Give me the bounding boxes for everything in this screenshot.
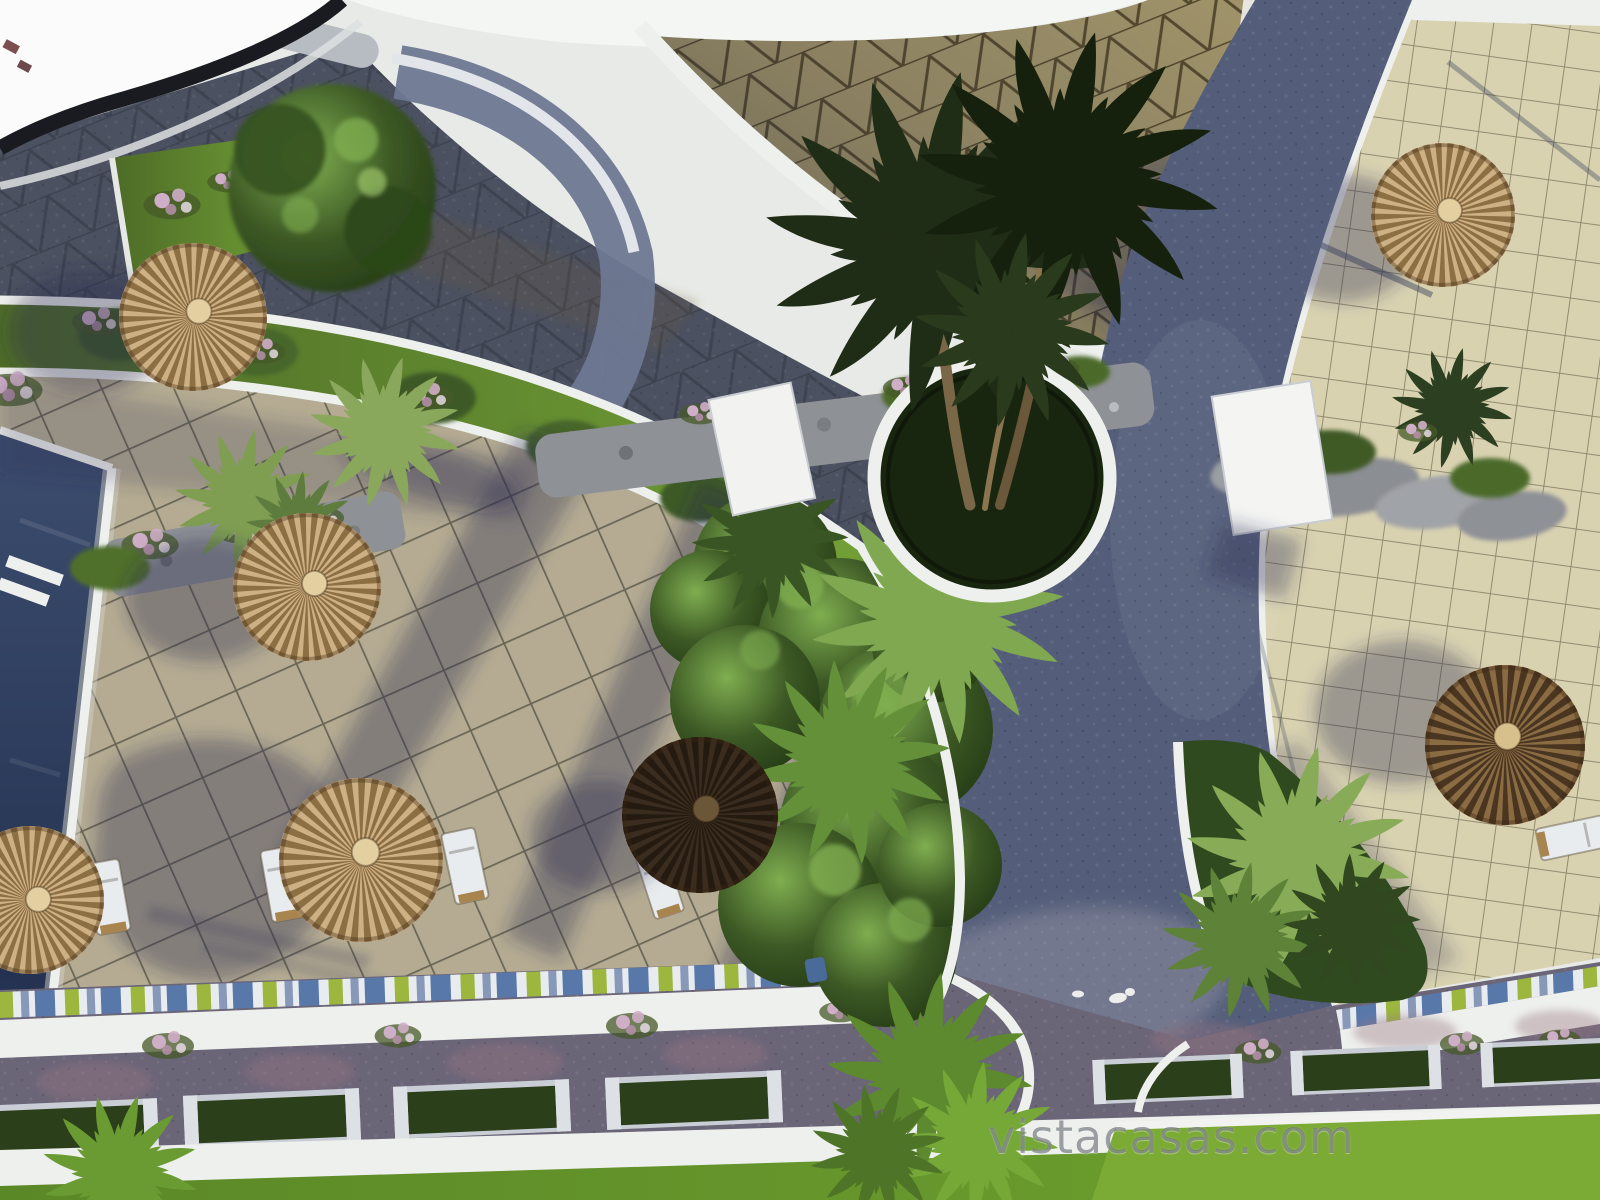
- hedge-planter: [183, 1088, 361, 1148]
- hedge-planter: [1290, 1045, 1441, 1096]
- hedge-planter: [605, 1070, 783, 1130]
- aerial-render: vistacasas.com: [0, 0, 1600, 1200]
- hedge-planter: [1480, 1037, 1600, 1088]
- leafy-tree: [228, 84, 436, 292]
- white-structure: [1212, 381, 1333, 535]
- blue-pot: [804, 956, 828, 983]
- hedge-planter: [393, 1079, 571, 1139]
- scene-canvas: [0, 0, 1600, 1200]
- umbrella-1: [119, 243, 267, 391]
- umbrella-5: [622, 737, 778, 893]
